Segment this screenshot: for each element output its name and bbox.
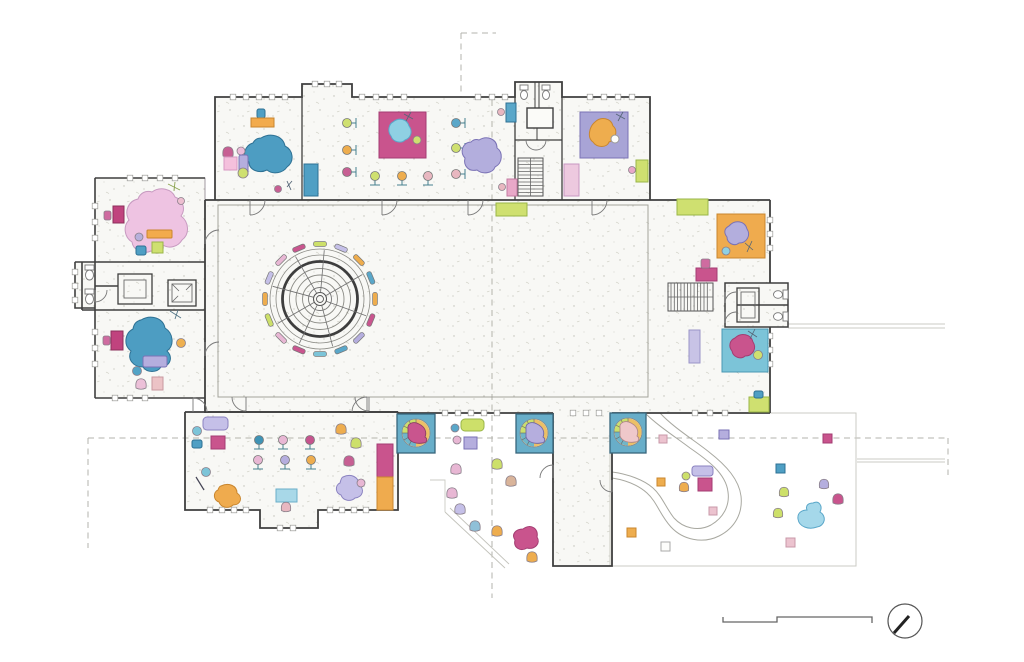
dot-magenta	[275, 186, 282, 193]
amphi-cushion	[263, 293, 268, 306]
play-square-teal	[776, 464, 785, 473]
window-tick	[92, 235, 98, 241]
chair-small	[701, 259, 710, 268]
window-tick	[468, 410, 474, 416]
podium-lavender	[143, 356, 167, 367]
toilet-tank	[542, 85, 550, 90]
window-tick	[387, 94, 393, 100]
column-lavender	[689, 330, 700, 363]
terrace-edge	[430, 480, 445, 512]
student-chair	[452, 144, 461, 153]
chair-small	[103, 336, 110, 345]
chair-blue	[754, 391, 763, 398]
student-chair	[279, 436, 288, 445]
window-tick	[373, 94, 379, 100]
window-tick	[475, 94, 481, 100]
toilet-tank	[783, 290, 788, 299]
window-tick	[324, 81, 330, 87]
sofa-lavender	[203, 417, 228, 430]
dot-lavender	[135, 233, 143, 241]
window-tick	[583, 410, 589, 416]
ramp-lines	[445, 508, 509, 568]
play-square-magenta	[823, 434, 832, 443]
desk-magenta	[113, 206, 124, 223]
window-tick	[243, 94, 249, 100]
playground-items	[627, 430, 843, 551]
site-boundary-dashed-top	[461, 33, 496, 97]
play-square-lavender	[719, 430, 729, 439]
window-tick	[596, 410, 602, 416]
beanbag-green	[773, 508, 782, 517]
dot-pink	[357, 479, 365, 487]
window-tick	[502, 94, 508, 100]
door-arc	[540, 465, 553, 478]
dot-blue	[451, 424, 459, 432]
beanbag-gold	[527, 552, 537, 563]
window-tick	[489, 94, 495, 100]
shelf-magenta	[377, 444, 393, 477]
window-tick	[587, 94, 593, 100]
toilet-bowl	[774, 313, 783, 321]
window-tick	[351, 507, 357, 513]
window-tick	[142, 395, 148, 401]
dot-white	[611, 135, 619, 143]
window-tick	[207, 507, 213, 513]
walkway-upper	[788, 324, 945, 328]
pond-blob-sky	[798, 502, 824, 528]
amphi-cushion	[373, 293, 378, 306]
desk-magenta	[111, 331, 123, 350]
beanbag-green	[351, 438, 361, 449]
window-tick	[327, 507, 333, 513]
courtyard-south	[447, 488, 538, 563]
bench-orange	[147, 230, 172, 238]
window-tick	[142, 175, 148, 181]
cabinet-teal	[304, 164, 318, 196]
chair-dot	[499, 184, 506, 191]
walkway-lower	[857, 459, 945, 462]
floor-plan-canvas	[0, 0, 1024, 662]
window-tick	[767, 245, 773, 251]
window-tick	[336, 81, 342, 87]
rug-green-hall	[496, 203, 527, 216]
beanbag-gold	[679, 482, 688, 491]
dot-sky	[722, 247, 730, 255]
window-tick	[256, 94, 262, 100]
floor-plan-svg	[0, 0, 1024, 662]
dot-green	[754, 351, 763, 360]
student-chair	[371, 172, 380, 181]
play-square-gold	[627, 528, 636, 537]
beanbag-green	[779, 487, 788, 496]
north-arrow-needle	[894, 616, 909, 633]
window-tick	[494, 410, 500, 416]
floors	[75, 82, 788, 566]
window-tick	[455, 410, 461, 416]
student-chair	[255, 436, 264, 445]
chair-teal	[192, 440, 202, 448]
student-chair	[343, 168, 352, 177]
desk-green	[749, 397, 769, 412]
beanbag-lavender	[819, 479, 828, 488]
student-chair	[281, 456, 290, 465]
student-chair	[424, 172, 433, 181]
beanbag-pink	[451, 464, 461, 475]
window-tick	[92, 219, 98, 225]
student-chair	[307, 456, 316, 465]
student-chair	[343, 146, 352, 155]
mat-rose	[152, 377, 163, 390]
dot-green	[682, 472, 690, 480]
beanbag-magenta	[833, 494, 843, 505]
play-blob-magenta	[514, 527, 539, 550]
chair-dot	[629, 167, 636, 174]
beanbag-lavender	[455, 504, 465, 515]
play-square-pink	[659, 435, 667, 443]
rug-blob-sky	[389, 119, 411, 142]
annotations	[723, 604, 922, 638]
toilet-tank	[85, 289, 94, 294]
desk-magenta	[696, 268, 717, 281]
desk-orange	[251, 118, 274, 127]
window-tick	[72, 269, 78, 275]
chair-dot	[498, 109, 505, 116]
window-tick	[112, 395, 118, 401]
chair-blue	[136, 246, 146, 255]
toilet-bowl	[86, 270, 94, 280]
beanbag-tan	[506, 476, 516, 487]
rug-green	[677, 199, 708, 215]
student-chair	[398, 172, 407, 181]
playground-outline	[610, 413, 856, 566]
window-tick	[219, 507, 225, 513]
play-square-pink	[786, 538, 795, 547]
dot-teal	[202, 468, 211, 477]
shelf-orange	[377, 477, 393, 510]
court-between-towers	[451, 419, 516, 486]
student-chair	[452, 119, 461, 128]
window-tick	[722, 410, 728, 416]
window-tick	[707, 410, 713, 416]
play-square-pink	[709, 507, 717, 515]
window-tick	[92, 361, 98, 367]
dot-green	[413, 136, 421, 144]
window-tick	[172, 175, 178, 181]
desk-pink	[507, 179, 517, 196]
window-tick	[442, 410, 448, 416]
window-tick	[312, 81, 318, 87]
beanbag-magenta	[223, 147, 233, 158]
window-tick	[282, 94, 288, 100]
play-square-gold	[657, 478, 665, 486]
window-tick	[767, 231, 773, 237]
desk-green	[636, 160, 648, 182]
window-tick	[767, 217, 773, 223]
dot-pink	[237, 147, 245, 155]
beanbag-magenta	[344, 456, 354, 467]
window-tick	[72, 283, 78, 289]
toilet-bowl	[521, 91, 528, 100]
play-square-white	[661, 542, 670, 551]
chair-small	[104, 211, 111, 220]
section-marker-line	[723, 617, 872, 623]
beanbag-gold	[336, 424, 346, 435]
window-tick	[92, 329, 98, 335]
window-tick	[692, 410, 698, 416]
toilet-bowl	[774, 291, 783, 299]
window-tick	[72, 297, 78, 303]
desk-teal	[506, 103, 516, 122]
dot-gold	[177, 339, 186, 348]
mat-pink	[224, 157, 237, 170]
dot-pink	[178, 198, 185, 205]
student-chair	[254, 456, 263, 465]
toilet-tank	[85, 265, 94, 270]
beanbag-pink	[447, 488, 457, 499]
core-table	[527, 108, 553, 128]
beanbag-gold	[492, 526, 502, 537]
toilet-tank	[783, 312, 788, 321]
amphi-cushion	[314, 242, 327, 247]
chair-pink	[281, 502, 290, 511]
toilet-tank	[520, 85, 528, 90]
play-square-magenta	[698, 478, 712, 491]
beanbag-green	[492, 459, 502, 470]
window-tick	[363, 507, 369, 513]
dot-pink	[453, 436, 461, 444]
mat-lavender	[464, 437, 477, 449]
window-tick	[629, 94, 635, 100]
window-tick	[230, 94, 236, 100]
dot-green	[238, 168, 248, 178]
window-tick	[339, 507, 345, 513]
mat-green	[152, 242, 163, 253]
amphi-cushion	[314, 352, 327, 357]
window-tick	[277, 525, 283, 531]
window-tick	[231, 507, 237, 513]
floor-plan-root	[72, 33, 948, 638]
student-chair	[343, 119, 352, 128]
window-tick	[127, 395, 133, 401]
window-tick	[481, 410, 487, 416]
sofa-lavender	[692, 466, 713, 476]
toilet-bowl	[86, 294, 94, 304]
chair-blue	[257, 109, 265, 118]
sofa-green	[461, 419, 484, 431]
mat-magenta	[211, 436, 225, 449]
student-chair	[306, 436, 315, 445]
beanbag-pink	[136, 379, 146, 390]
dot-teal	[193, 427, 202, 436]
window-tick	[359, 94, 365, 100]
table-sky	[276, 489, 297, 502]
window-tick	[243, 507, 249, 513]
window-tick	[601, 94, 607, 100]
window-tick	[570, 410, 576, 416]
window-tick	[157, 175, 163, 181]
window-tick	[127, 175, 133, 181]
window-tick	[615, 94, 621, 100]
window-tick	[269, 94, 275, 100]
window-tick	[92, 345, 98, 351]
cabinet-pink	[564, 164, 579, 196]
window-tick	[92, 203, 98, 209]
beanbag-blue	[470, 521, 480, 532]
window-tick	[401, 94, 407, 100]
window-tick	[290, 525, 296, 531]
dot-teal	[133, 367, 142, 376]
toilet-bowl	[543, 91, 550, 100]
student-chair	[452, 170, 461, 179]
